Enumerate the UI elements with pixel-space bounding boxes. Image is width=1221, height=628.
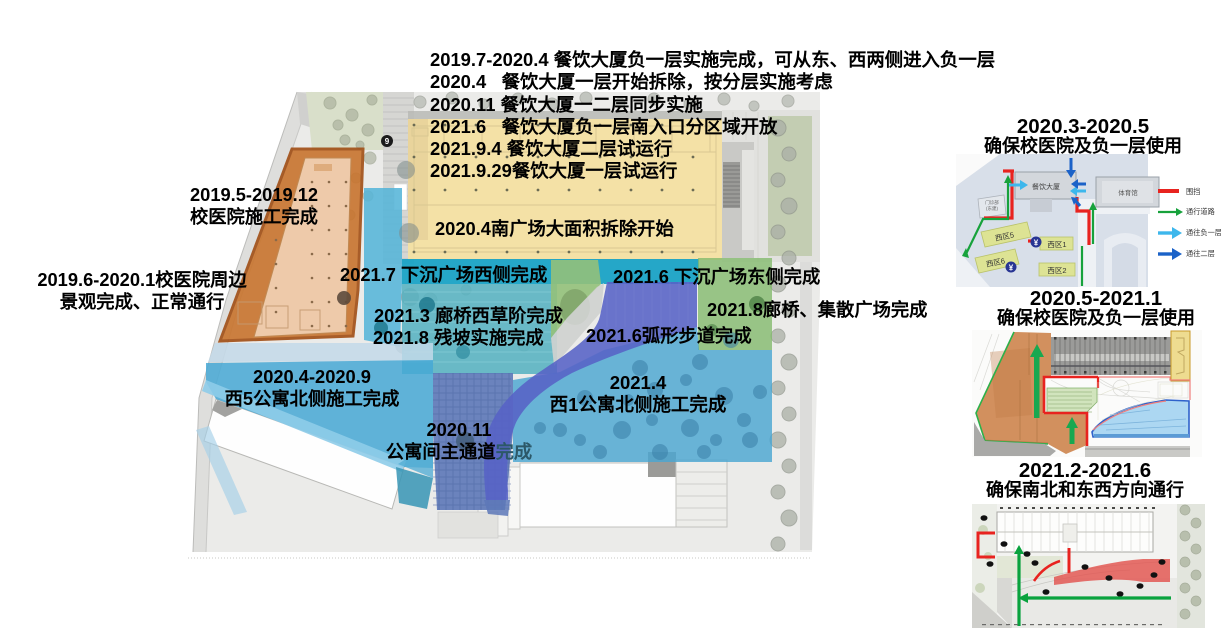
svg-text:(东建): (东建): [986, 205, 998, 212]
svg-text:通往二层: 通往二层: [1186, 249, 1215, 258]
svg-text:通往负一层: 通往负一层: [1186, 228, 1221, 237]
svg-text:¥: ¥: [1009, 264, 1014, 273]
svg-text:通行道路: 通行道路: [1186, 207, 1215, 216]
svg-text:围挡: 围挡: [1186, 187, 1200, 196]
svg-text:西区1: 西区1: [1047, 240, 1066, 249]
svg-text:¥: ¥: [1034, 239, 1039, 248]
svg-text:西区2: 西区2: [1047, 266, 1066, 275]
svg-text:餐饮大厦: 餐饮大厦: [1032, 182, 1060, 191]
svg-text:体育馆: 体育馆: [1118, 188, 1138, 197]
svg-text:门诊部: 门诊部: [985, 199, 999, 206]
svg-text:9: 9: [385, 137, 390, 146]
